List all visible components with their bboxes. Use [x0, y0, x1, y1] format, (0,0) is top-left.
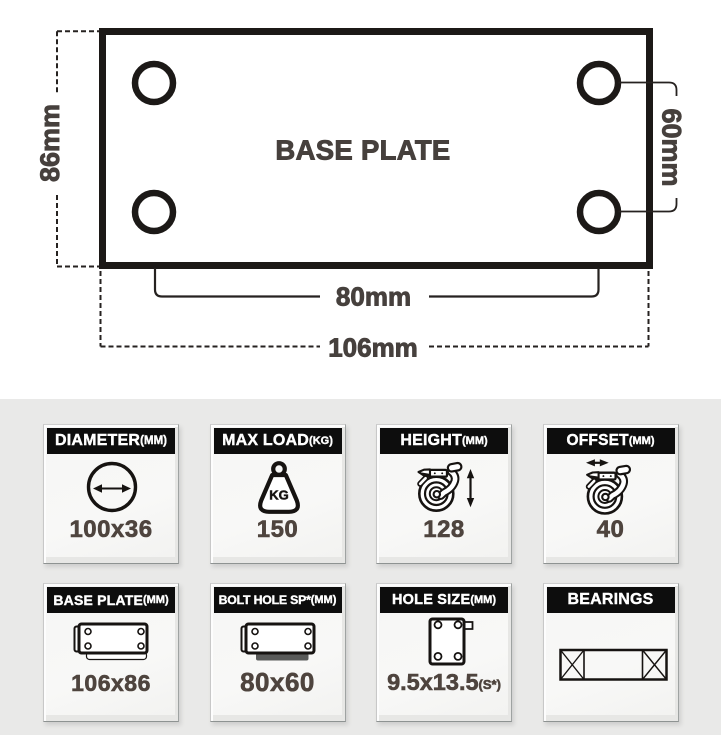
svg-text:BASE PLATE: BASE PLATE — [275, 135, 450, 166]
svg-text:60mm: 60mm — [657, 108, 687, 186]
svg-text:106mm: 106mm — [328, 333, 418, 363]
svg-text:80mm: 80mm — [336, 282, 411, 312]
svg-text:86mm: 86mm — [35, 104, 65, 182]
svg-text:KG: KG — [269, 488, 289, 503]
